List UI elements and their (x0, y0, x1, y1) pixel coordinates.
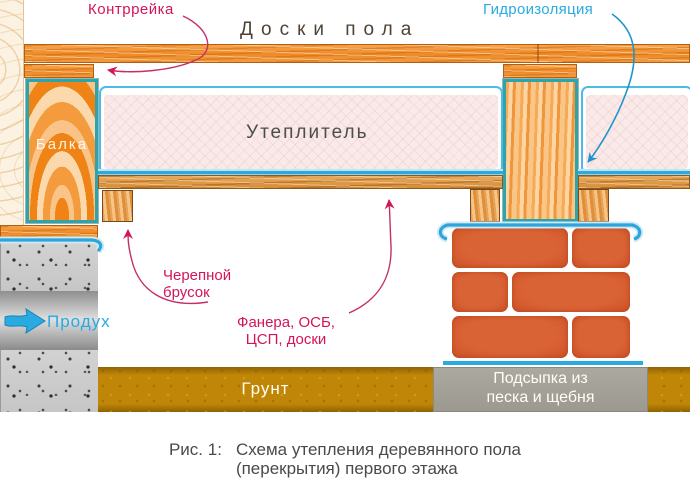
sill-board (0, 225, 98, 239)
figure-number: Рис. 1: (169, 440, 222, 478)
beam-label: Балка (26, 136, 98, 153)
figure-caption: Рис. 1: Схема утепления деревянного пола… (0, 440, 690, 478)
foundation-wall-top (0, 243, 98, 291)
sheathing-label-line1: Фанера, ОСБ, (237, 314, 335, 331)
sheathing-board-left (98, 175, 503, 189)
insulation-area-right (581, 86, 690, 174)
brick (572, 228, 630, 268)
brick (452, 272, 508, 312)
floor-boards-label: Доски пола (240, 19, 419, 41)
bedding-label-line1: Подсыпка из (493, 370, 588, 387)
insulation-fill (586, 95, 688, 169)
floor-boards (24, 44, 690, 63)
sheathing-board-right (578, 175, 690, 189)
sheathing-label: Фанера, ОСБ, ЦСП, доски (220, 314, 352, 348)
bedding-label: Подсыпка из песка и щебня (433, 369, 648, 407)
figure-caption-line2: (перекрытия) первого этажа (236, 459, 458, 478)
ground-label: Грунт (98, 379, 433, 399)
counter-batten-left (24, 64, 94, 78)
support-post (503, 79, 578, 222)
waterproofing-label: Гидроизоляция (483, 1, 593, 18)
vent-label: Продух (47, 312, 111, 332)
floor-board-seam (537, 44, 539, 63)
sheathing-label-line2: ЦСП, доски (246, 331, 327, 348)
bedding-label-line2: песка и щебня (486, 389, 594, 406)
counter-batten-right (503, 64, 577, 78)
skull-block-label: Черепной брусок (163, 267, 231, 301)
brick (452, 228, 568, 268)
brick (572, 316, 630, 358)
floor-insulation-diagram: Контррейка Доски пола Гидроизоляция Балк… (0, 0, 690, 482)
wall-edge (0, 0, 24, 226)
skull-block-label-line1: Черепной (163, 267, 231, 284)
figure-caption-line1: Схема утепления деревянного пола (236, 440, 521, 459)
skull-block-mid (470, 189, 500, 222)
figure-caption-text: Схема утепления деревянного пола (перекр… (236, 440, 521, 478)
brick (452, 316, 568, 358)
counter-batten-label: Контррейка (88, 1, 174, 18)
waterproofing-under-pier (443, 361, 643, 365)
insulation-label: Утеплитель (246, 122, 369, 144)
skull-block-left (102, 190, 133, 222)
sheathing-leader-arrow (349, 200, 391, 313)
skull-block-right (578, 189, 609, 222)
foundation-wall-bottom (0, 350, 98, 412)
skull-block-label-line2: брусок (163, 284, 210, 301)
brick (512, 272, 630, 312)
